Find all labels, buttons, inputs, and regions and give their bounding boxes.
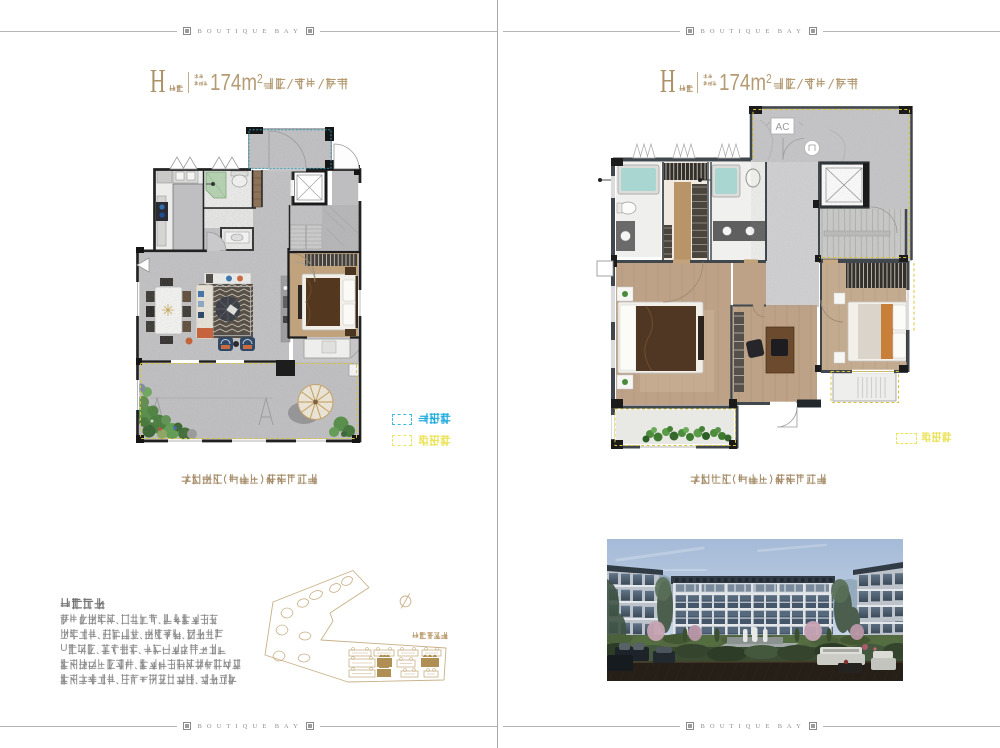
svg-text:AC: AC xyxy=(776,122,790,133)
